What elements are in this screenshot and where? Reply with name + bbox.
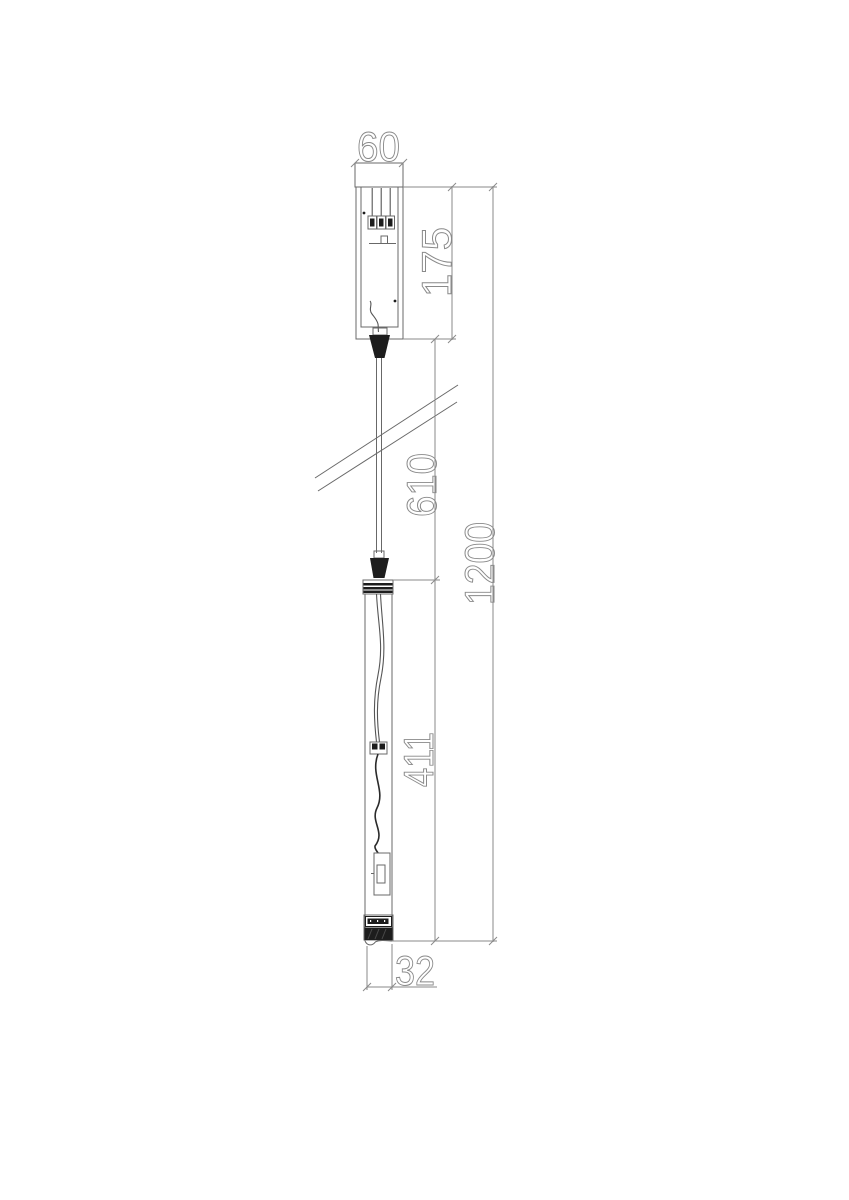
terminal-clamp — [370, 219, 375, 227]
screw-hole — [394, 300, 397, 303]
terminal-clamp — [388, 219, 393, 227]
canopy — [355, 163, 403, 339]
gland-collar — [373, 328, 387, 335]
dim-label-60: 60 — [357, 123, 400, 170]
label-speck — [384, 920, 385, 922]
coiled-wire — [375, 754, 380, 853]
driver-body — [374, 853, 390, 895]
lamp-tube — [363, 580, 393, 945]
bracket-tab — [381, 236, 388, 243]
terminal-block — [368, 188, 395, 229]
tube-bottom-curve — [365, 941, 392, 945]
ring — [364, 591, 393, 594]
mounting-bracket — [369, 236, 396, 244]
suspension-cable — [377, 358, 382, 553]
dimension-60: 60 — [351, 123, 407, 170]
led-driver — [371, 853, 390, 895]
terminal-clamp — [379, 219, 384, 227]
dimension-175: 175 — [413, 183, 460, 343]
label-speck — [370, 920, 371, 922]
dim-label-610: 610 — [398, 453, 445, 517]
connector-pin — [380, 744, 386, 750]
ring — [364, 587, 393, 590]
canopy-inner-box — [361, 187, 398, 327]
label-speck — [377, 920, 378, 922]
dim-label-32: 32 — [395, 947, 435, 994]
gland-cone — [370, 558, 389, 578]
label-band — [364, 915, 393, 940]
technical-drawing: 60 175 610 411 1200 — [0, 0, 849, 1200]
plug-connector — [370, 742, 387, 754]
dim-label-411: 411 — [395, 732, 442, 787]
canopy-body — [356, 187, 403, 339]
drawing-canvas: 60 175 610 411 1200 — [0, 0, 849, 1200]
cable-gland-lamp — [370, 551, 389, 578]
ring — [364, 583, 393, 586]
gland-collar — [374, 551, 384, 558]
dimension-32: 32 — [363, 944, 437, 994]
cable-gland-top — [369, 328, 390, 358]
gland-cone — [369, 335, 390, 358]
adjustment-rings — [364, 583, 393, 593]
dim-label-1200: 1200 — [456, 522, 503, 605]
driver-window — [377, 865, 385, 883]
dim-label-175: 175 — [413, 227, 460, 297]
dimension-1200: 1200 — [456, 183, 503, 945]
screw-hole — [363, 212, 366, 215]
dimension-610-411: 610 411 — [395, 335, 445, 945]
connector-pin — [372, 744, 378, 750]
